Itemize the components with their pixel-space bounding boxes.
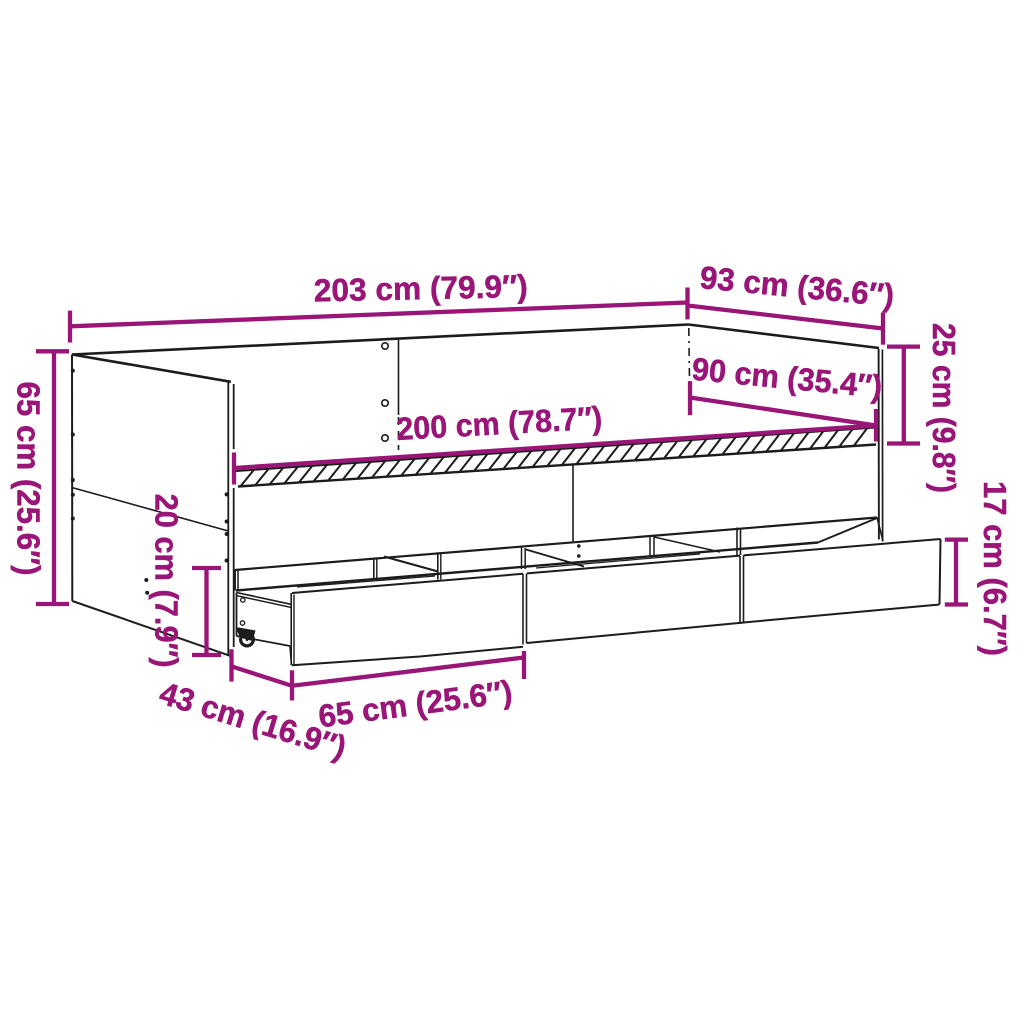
svg-text:20 cm (7.9″): 20 cm (7.9″) bbox=[149, 494, 185, 668]
svg-text:25 cm (9.8″): 25 cm (9.8″) bbox=[926, 323, 962, 493]
svg-text:65 cm (25.6″): 65 cm (25.6″) bbox=[11, 382, 47, 576]
svg-text:17 cm (6.7″): 17 cm (6.7″) bbox=[977, 481, 1013, 656]
svg-text:203 cm (79.9″): 203 cm (79.9″) bbox=[313, 268, 528, 308]
